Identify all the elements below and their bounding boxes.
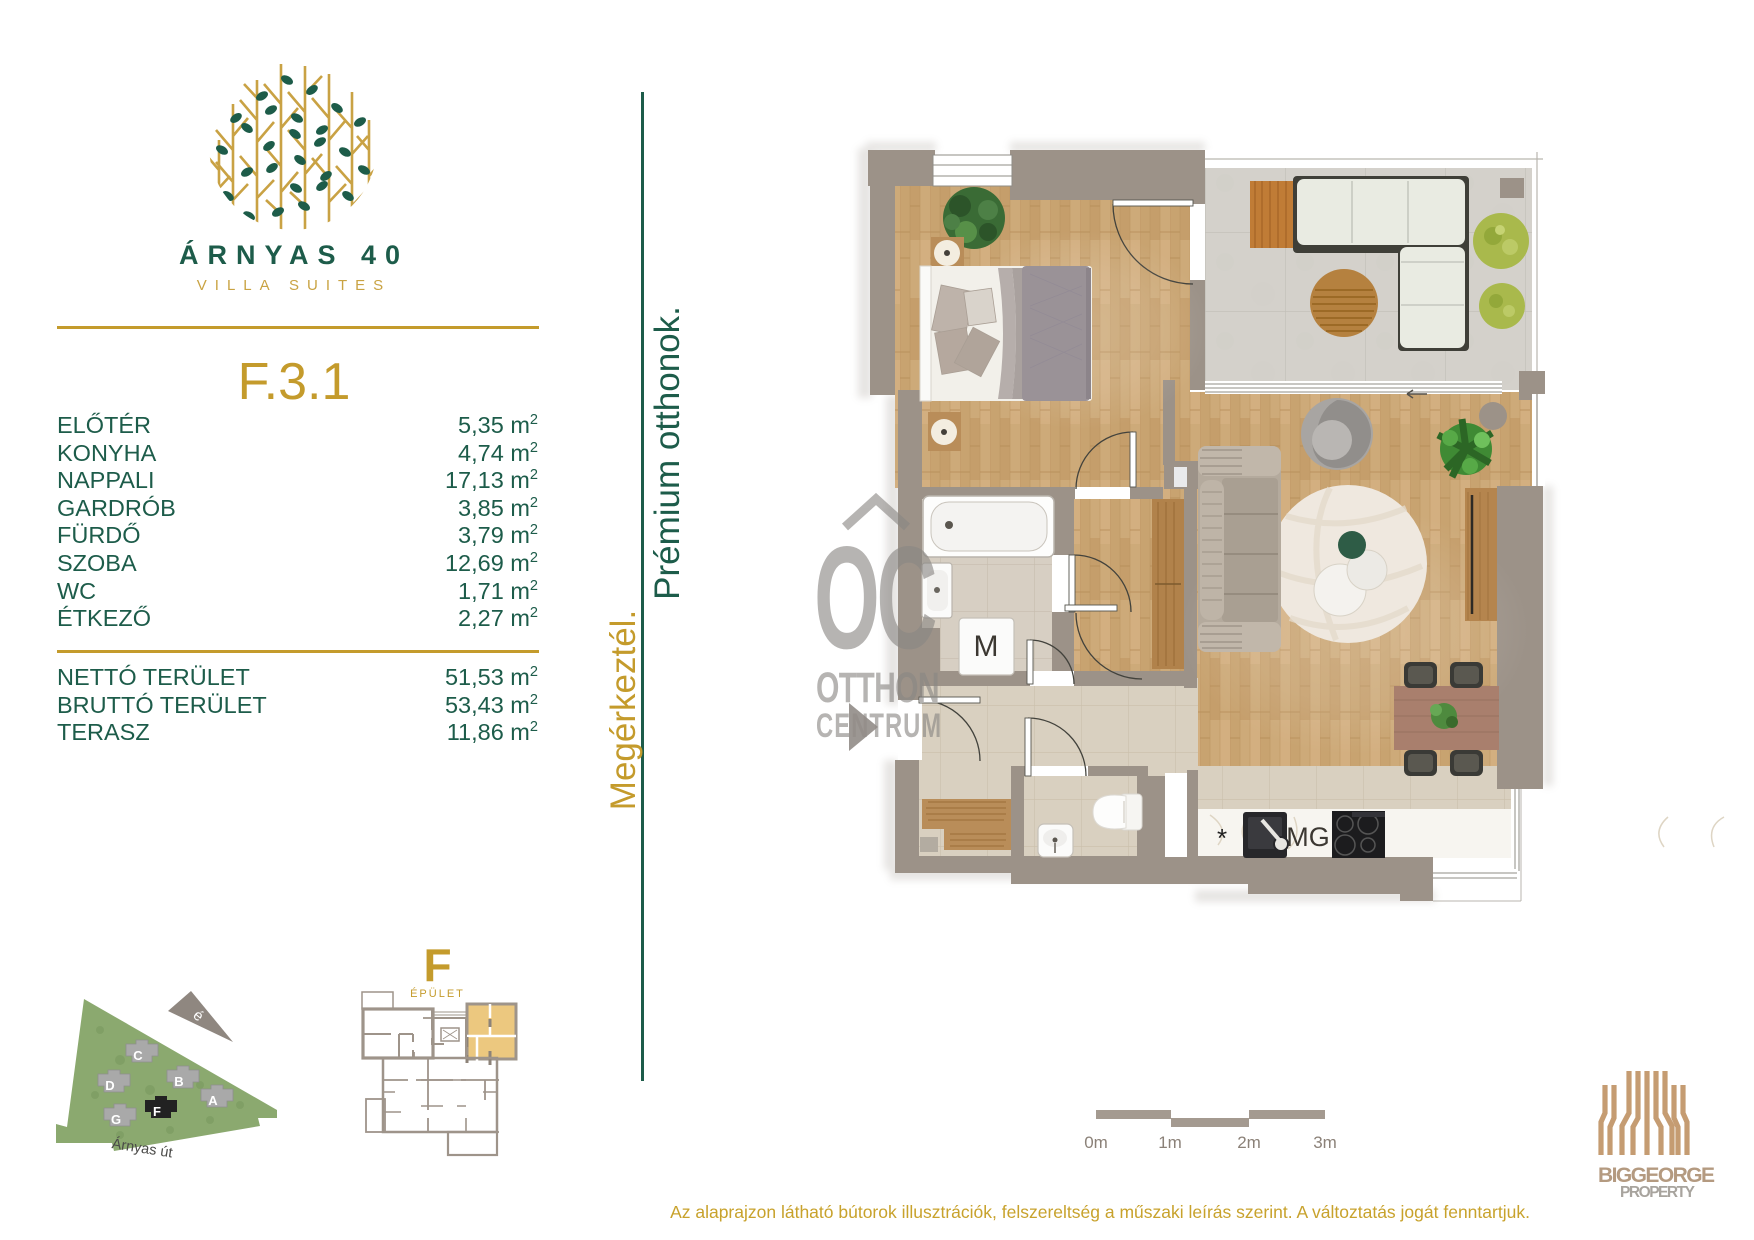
svg-text:*: * <box>1217 823 1227 853</box>
svg-text:M: M <box>974 630 999 663</box>
svg-text:D: D <box>105 1078 114 1093</box>
svg-text:C: C <box>133 1048 143 1063</box>
svg-text:PROPERTY: PROPERTY <box>1620 1184 1696 1201</box>
svg-text:G: G <box>111 1112 121 1127</box>
svg-text:MG: MG <box>1286 822 1330 852</box>
svg-text:F: F <box>153 1104 161 1119</box>
svg-text:OTTHON: OTTHON <box>816 663 939 712</box>
svg-text:A: A <box>208 1093 218 1108</box>
svg-text:OC: OC <box>814 517 935 680</box>
svg-text:CENTRUM: CENTRUM <box>816 707 942 745</box>
svg-text:B: B <box>174 1074 183 1089</box>
